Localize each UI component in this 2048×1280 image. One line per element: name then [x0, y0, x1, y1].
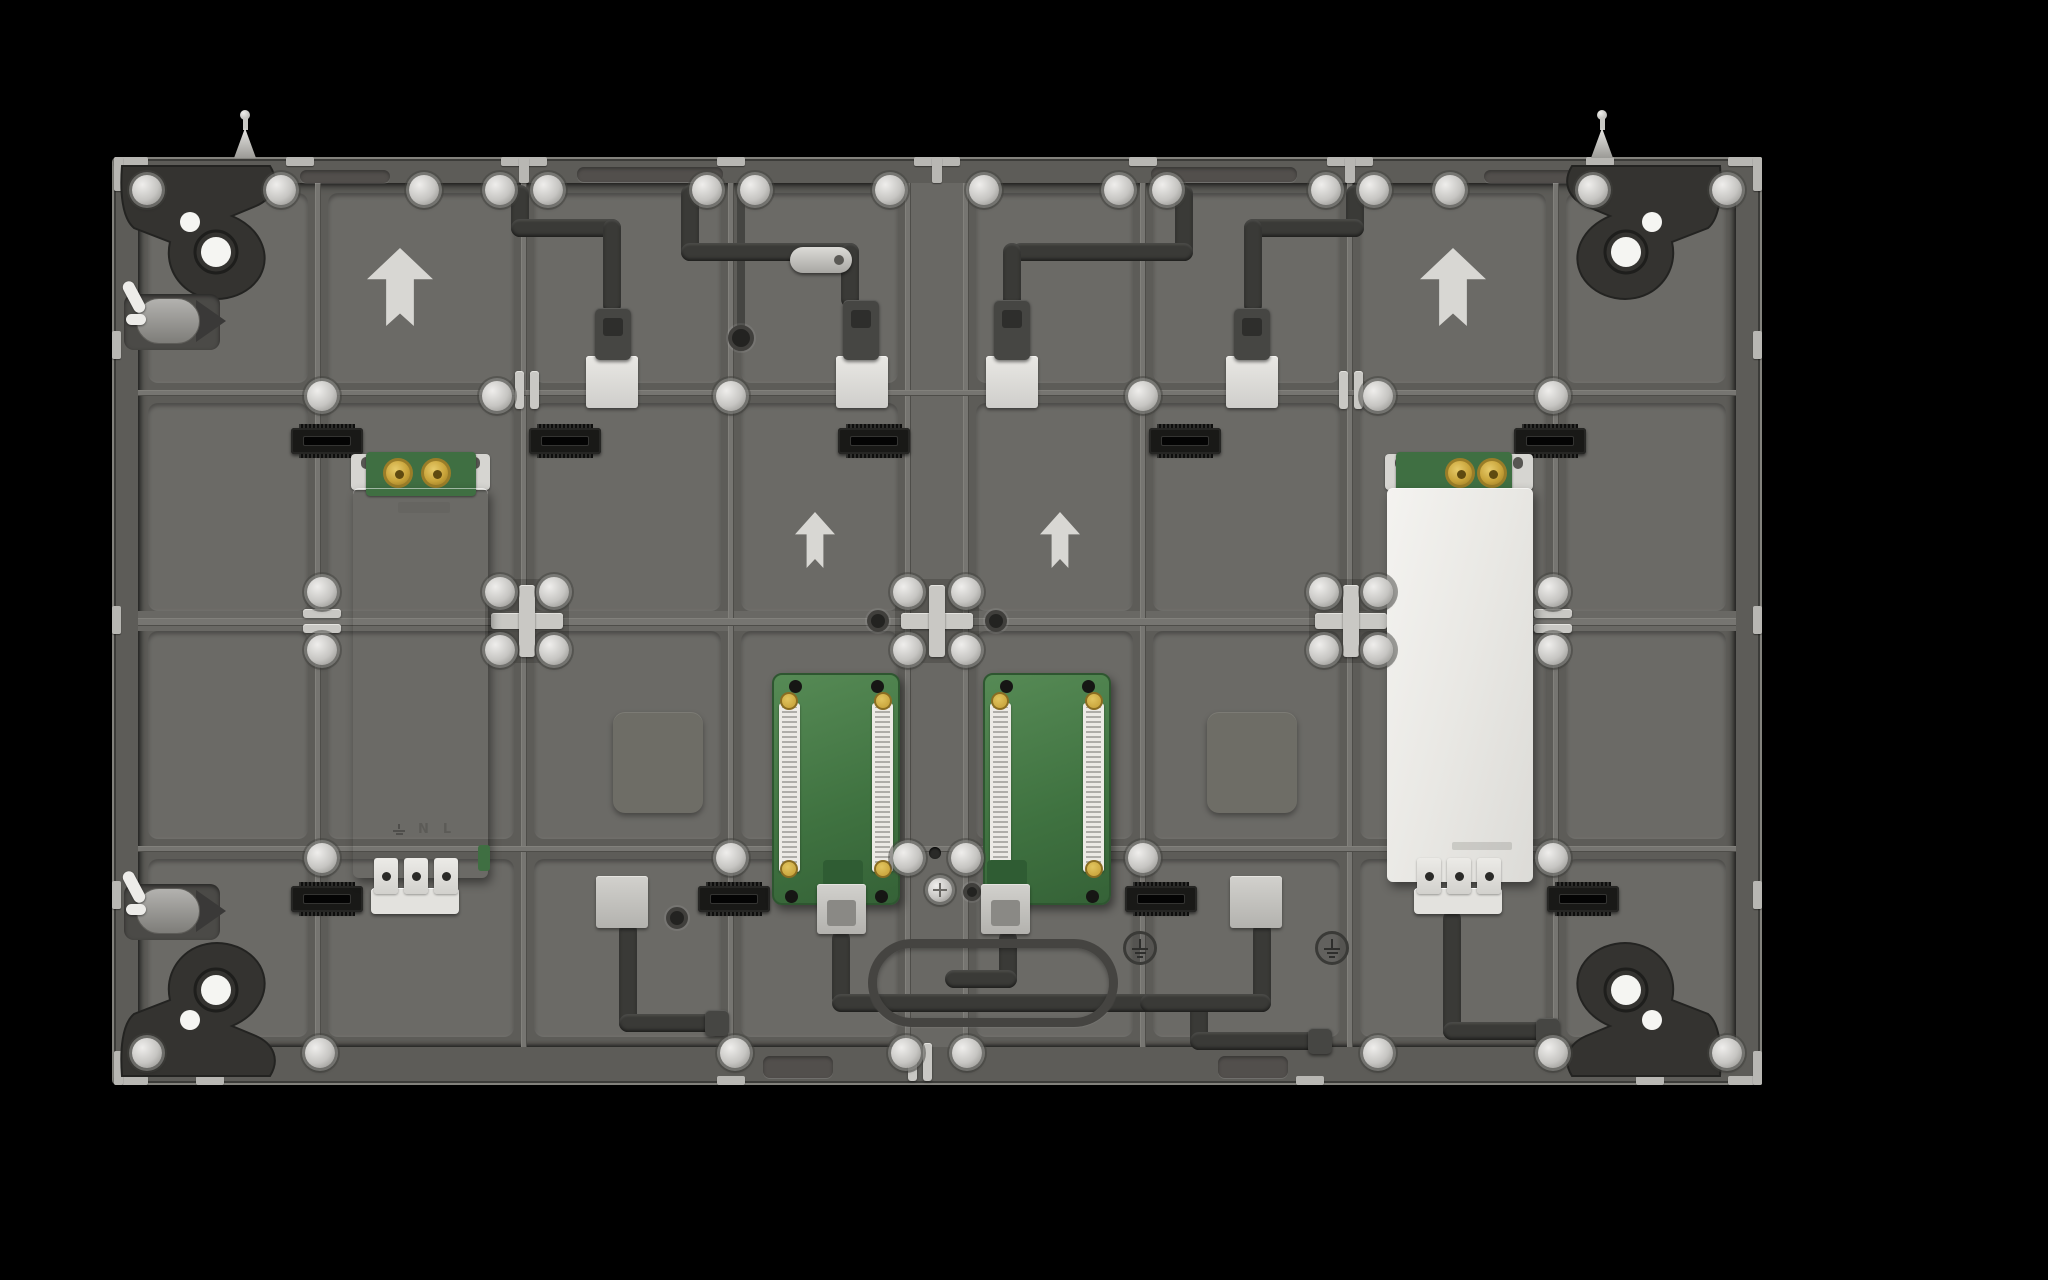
ground-symbol-icon [1315, 931, 1349, 965]
frame-tab [286, 157, 314, 166]
connector-slot [850, 436, 898, 446]
cable-plug [843, 300, 879, 360]
terminal-hole [1455, 872, 1464, 881]
connector-pins [1555, 882, 1611, 886]
washer-ring [867, 610, 889, 632]
align-eq-mark [1534, 624, 1572, 633]
board-connector-socket [1547, 886, 1619, 912]
psu-terminal-labels: NL [392, 822, 464, 838]
frame-tab [717, 157, 745, 166]
rivet [716, 381, 746, 411]
terminal-hole [1425, 872, 1434, 881]
board-connector-socket [291, 428, 363, 454]
edge-connector-strip [990, 703, 1011, 872]
board-connector-socket [698, 886, 770, 912]
terminal-hole [442, 872, 451, 881]
cable-guide-ring [868, 939, 1118, 1027]
plug-step [603, 318, 623, 336]
blank-plate [613, 712, 703, 813]
panel-hole [929, 847, 941, 859]
rivet [952, 1038, 982, 1068]
terminal-tower [374, 858, 398, 894]
rivet [1104, 175, 1134, 205]
edge-connector-strip [872, 703, 893, 872]
eyebolt-cone [234, 128, 256, 158]
pcb-gold-screw [991, 692, 1009, 710]
connector-pins [537, 454, 593, 458]
washer-ring [985, 610, 1007, 632]
panel-cell [148, 403, 308, 611]
panel-cell [328, 193, 514, 383]
rivet [1363, 1038, 1393, 1068]
frame-side-tab [1753, 331, 1762, 359]
rivet [533, 175, 563, 205]
plug-inner [991, 900, 1020, 926]
connector-pins [846, 454, 902, 458]
rivet [692, 175, 722, 205]
connector-slot [303, 894, 351, 904]
signal-socket [836, 356, 888, 408]
align-bar-mark [1354, 371, 1363, 409]
rivet [893, 843, 923, 873]
terminal-hole [412, 872, 421, 881]
rivet [1538, 843, 1568, 873]
terminal-hole [1489, 470, 1498, 479]
pcb-hole [875, 890, 888, 903]
power-cable [1244, 219, 1262, 314]
connector-pins [1157, 454, 1213, 458]
rivet [1363, 635, 1393, 665]
cable-end [1308, 1028, 1332, 1054]
rivet [1435, 175, 1465, 205]
board-connector-socket [1514, 428, 1586, 454]
frame-t-tab [932, 157, 942, 183]
frame-tab [1129, 157, 1157, 166]
rivet [266, 175, 296, 205]
cable-end [705, 1010, 729, 1036]
cable-plug [1234, 308, 1270, 360]
frame-side-tab [112, 606, 121, 634]
board-connector-socket [1125, 886, 1197, 912]
pcb-gold-screw [874, 692, 892, 710]
rivet [409, 175, 439, 205]
rivet [951, 635, 981, 665]
rivet [893, 635, 923, 665]
alignment-cross [1343, 585, 1359, 657]
power-cable [1190, 1032, 1320, 1050]
rivet [720, 1038, 750, 1068]
rivet [539, 577, 569, 607]
psu-gold-terminal [1477, 458, 1507, 488]
frame-t-tab [1345, 157, 1355, 183]
panel-cell [1566, 631, 1726, 839]
panel-cell [1566, 403, 1726, 611]
frame-side-tab [1753, 881, 1762, 909]
power-cable [1244, 219, 1364, 237]
plug-inner [827, 900, 856, 926]
connector-pins [537, 424, 593, 428]
frame-corner-bracket [1753, 1051, 1762, 1085]
connector-pins [299, 424, 355, 428]
frame-side-tab [1753, 606, 1762, 634]
terminal-tower [434, 858, 458, 894]
rivet [307, 843, 337, 873]
psu-gold-terminal [421, 458, 451, 488]
frame-recess [1218, 1056, 1288, 1078]
rivet [307, 635, 337, 665]
rivet [1363, 381, 1393, 411]
terminal-hole [1485, 872, 1494, 881]
align-bar-mark [515, 371, 524, 409]
terminal-hole [433, 470, 442, 479]
rivet [307, 577, 337, 607]
board-connector-socket [1149, 428, 1221, 454]
connector-pins [1555, 912, 1611, 916]
cable-clamp [790, 247, 852, 273]
pcb-gold-screw [874, 860, 892, 878]
pcb-hole [789, 680, 802, 693]
rivet [1578, 175, 1608, 205]
pcb-connector [823, 860, 863, 886]
rivet [307, 381, 337, 411]
panel-screw [928, 878, 952, 902]
rivet [893, 577, 923, 607]
terminal-hole [382, 872, 391, 881]
connector-pins [1522, 424, 1578, 428]
screw-slot [939, 883, 941, 897]
connector-slot [541, 436, 589, 446]
plug-step [1002, 310, 1022, 328]
rivet [1712, 175, 1742, 205]
power-supply-left [353, 488, 488, 878]
psu-terminal-l: L [443, 822, 453, 838]
pcb-cable-plug [981, 884, 1030, 934]
rivet [1152, 175, 1182, 205]
ear-notch [1513, 457, 1523, 469]
connector-pins [1133, 912, 1189, 916]
connector-pins [846, 424, 902, 428]
rivet [1311, 175, 1341, 205]
align-eq-mark [303, 624, 341, 633]
rivet [740, 175, 770, 205]
power-socket [596, 876, 648, 928]
frame-side-tab [112, 331, 121, 359]
connector-slot [1559, 894, 1607, 904]
psu-gold-terminal [383, 458, 413, 488]
terminal-tower [1477, 858, 1501, 894]
connector-pins [1157, 424, 1213, 428]
align-bar-mark [530, 371, 539, 409]
power-cable [1443, 910, 1461, 1040]
power-cable [1003, 243, 1021, 308]
align-eq-mark [1534, 609, 1572, 618]
rivet [1309, 635, 1339, 665]
terminal-tower [1447, 858, 1471, 894]
rivet [1363, 577, 1393, 607]
pcb-gold-screw [780, 860, 798, 878]
board-connector-socket [291, 886, 363, 912]
connector-slot [1526, 436, 1574, 446]
frame-t-tab [519, 157, 529, 183]
edge-connector-strip [1083, 703, 1104, 872]
connector-slot [1161, 436, 1209, 446]
plug-step [1242, 318, 1262, 336]
connector-pins [299, 882, 355, 886]
plug-step [851, 310, 871, 328]
cable-plug [595, 308, 631, 360]
rivet [891, 1038, 921, 1068]
rivet [1538, 1038, 1568, 1068]
rivet [951, 577, 981, 607]
frame-side-tab [112, 881, 121, 909]
frame-bottom-tab [717, 1076, 745, 1085]
rivet [1538, 577, 1568, 607]
rivet [485, 635, 515, 665]
alignment-cross [929, 585, 945, 657]
signal-socket [586, 356, 638, 408]
psu-gold-terminal [1445, 458, 1475, 488]
psu-terminal-n: N [418, 822, 431, 838]
rivet [1359, 175, 1389, 205]
align-bar-mark [1339, 371, 1348, 409]
align-bar-mark [923, 1043, 932, 1081]
wire-end-ring [728, 325, 754, 351]
rivet [132, 1038, 162, 1068]
psu-logo-mark [398, 502, 450, 513]
pcb-connector [987, 860, 1027, 886]
eyebolt-cone [1591, 128, 1613, 158]
signal-socket [1226, 356, 1278, 408]
terminal-tower [1417, 858, 1441, 894]
power-supply-right [1387, 488, 1533, 882]
washer-ring [666, 907, 688, 929]
power-cable [1012, 243, 1193, 261]
psu-vent-marks [1452, 842, 1512, 850]
power-socket [1230, 876, 1282, 928]
board-connector-socket [529, 428, 601, 454]
pcb-hole [1000, 680, 1013, 693]
rivet [132, 175, 162, 205]
pcb-gold-screw [1085, 692, 1103, 710]
rivet [1712, 1038, 1742, 1068]
connector-pins [299, 454, 355, 458]
rivet [1538, 635, 1568, 665]
pcb-hole [785, 890, 798, 903]
power-cable [603, 219, 621, 314]
latch-tab [126, 314, 146, 325]
pcb-hole [871, 680, 884, 693]
pcb-gold-screw [780, 692, 798, 710]
rivet [1538, 381, 1568, 411]
align-eq-mark [303, 609, 341, 618]
rivet [485, 175, 515, 205]
rivet [951, 843, 981, 873]
rivet [305, 1038, 335, 1068]
power-cable [1443, 1022, 1548, 1040]
rivet [1128, 381, 1158, 411]
board-connector-socket [838, 428, 910, 454]
latch-tab [126, 904, 146, 915]
frame-vent-slot [300, 170, 390, 183]
clamp-bolt [834, 255, 844, 265]
terminal-hole [395, 470, 404, 479]
blank-plate [1207, 712, 1297, 813]
vertical-rib [728, 183, 734, 1047]
edge-connector-strip [779, 703, 800, 872]
scene: NL [0, 0, 2048, 1280]
panel-cell [148, 631, 308, 839]
connector-slot [303, 436, 351, 446]
frame-corner-bracket [1753, 157, 1762, 191]
psu-green-sliver [478, 845, 490, 871]
vertical-rib [1140, 183, 1146, 1047]
panel-cell [976, 403, 1133, 611]
cable-plug [994, 300, 1030, 360]
terminal-hole [1457, 470, 1466, 479]
connector-slot [1137, 894, 1185, 904]
corner-gusset [1552, 938, 1722, 1078]
power-cable [619, 1014, 717, 1032]
rivet [485, 577, 515, 607]
connector-slot [710, 894, 758, 904]
rivet [539, 635, 569, 665]
rivet [1128, 843, 1158, 873]
terminal-tower [404, 858, 428, 894]
power-cable [1140, 994, 1271, 1012]
connector-pins [706, 882, 762, 886]
horizontal-rib [138, 390, 1736, 396]
corner-gusset [1552, 164, 1722, 304]
rivet [969, 175, 999, 205]
frame-recess [763, 1056, 833, 1078]
ground-symbol-icon [392, 824, 406, 836]
pcb-gold-screw [1085, 860, 1103, 878]
pcb-cable-plug [817, 884, 866, 934]
signal-socket [986, 356, 1038, 408]
connector-pins [706, 912, 762, 916]
alignment-cross [519, 585, 535, 657]
frame-bottom-tab [1296, 1076, 1324, 1085]
pcb-hole [1082, 680, 1095, 693]
connector-pins [1133, 882, 1189, 886]
rivet [875, 175, 905, 205]
pcb-hole [1086, 890, 1099, 903]
ground-symbol-icon [1123, 931, 1157, 965]
rivet [716, 843, 746, 873]
connector-pins [299, 912, 355, 916]
rivet [1309, 577, 1339, 607]
washer-ring [963, 883, 981, 901]
rivet [482, 381, 512, 411]
